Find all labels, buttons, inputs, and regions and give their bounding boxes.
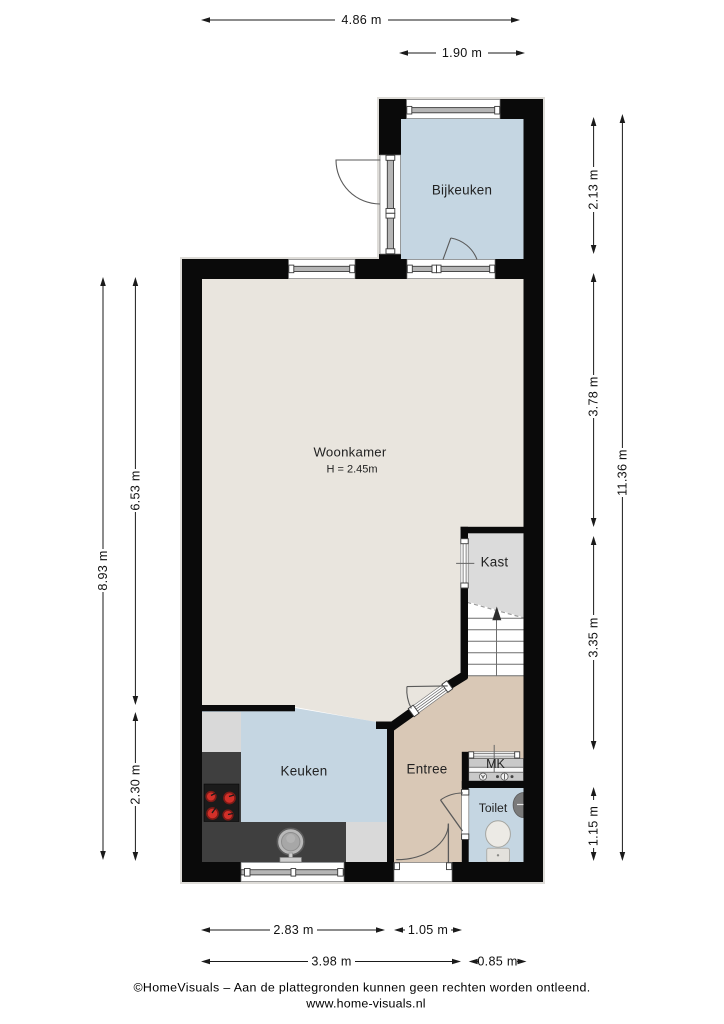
svg-text:©HomeVisuals – Aan de plattegr: ©HomeVisuals – Aan de plattegronden kunn… (133, 981, 590, 995)
svg-text:3.35 m: 3.35 m (587, 617, 601, 657)
svg-text:Entree: Entree (407, 762, 448, 777)
svg-text:2.13 m: 2.13 m (587, 169, 601, 209)
svg-text:6.53 m: 6.53 m (128, 470, 142, 510)
svg-text:8.93 m: 8.93 m (96, 550, 110, 590)
svg-text:2.83 m: 2.83 m (273, 923, 313, 937)
svg-text:H = 2.45m: H = 2.45m (326, 464, 377, 476)
svg-text:1.15 m: 1.15 m (587, 806, 601, 846)
svg-text:Woonkamer: Woonkamer (313, 445, 386, 460)
svg-text:Toilet: Toilet (479, 801, 508, 815)
svg-text:3.78 m: 3.78 m (587, 376, 601, 416)
svg-text:4.86 m: 4.86 m (341, 13, 381, 27)
svg-text:Kast: Kast (481, 555, 509, 570)
svg-text:1.90 m: 1.90 m (442, 46, 482, 60)
svg-text:1.05 m: 1.05 m (408, 923, 448, 937)
svg-text:0.85 m: 0.85 m (477, 955, 517, 969)
svg-text:Keuken: Keuken (281, 764, 328, 779)
svg-text:www.home-visuals.nl: www.home-visuals.nl (305, 997, 425, 1011)
svg-text:11.36 m: 11.36 m (615, 449, 629, 496)
svg-text:3.98 m: 3.98 m (311, 955, 351, 969)
svg-text:Bijkeuken: Bijkeuken (432, 183, 492, 198)
svg-text:2.30 m: 2.30 m (128, 764, 142, 804)
svg-text:MK: MK (486, 757, 505, 771)
